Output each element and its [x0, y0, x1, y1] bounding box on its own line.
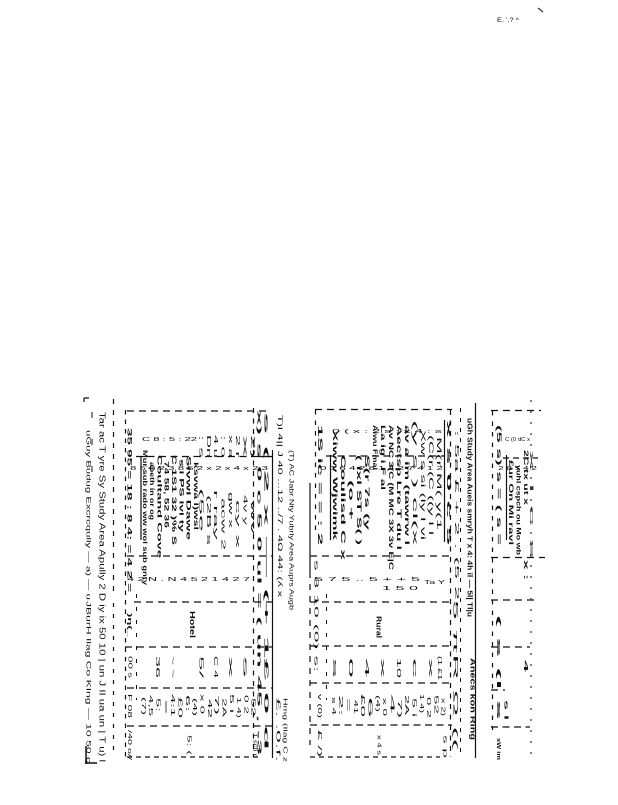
svg-text:s i PS ivi ty: s i PS ivi ty: [177, 459, 183, 534]
svg-text:x a: x a: [227, 435, 233, 461]
svg-text:5 7 5 .. 5 + + 5: 5 7 5 .. 5 + + 5: [314, 577, 420, 583]
svg-text:1 4): 1 4): [235, 697, 241, 718]
svg-text:C 4: C 4: [212, 656, 218, 678]
svg-text:2A: 2A: [403, 695, 409, 716]
svg-text:v (0): v (0): [316, 694, 322, 718]
svg-text:(C(r (C ((y I l: (C(r (C ((y I l: [427, 435, 433, 535]
svg-text:s l: s l: [502, 700, 508, 721]
svg-text:C 1S1 32 )% S: C 1S1 32 )% S: [170, 455, 176, 545]
svg-text:C 8 : 5 : 22: C 8 : 5 : 22: [142, 437, 197, 443]
svg-text:Rural: Rural: [375, 616, 384, 638]
svg-text:uGuy Budug Excrcqully — a) — u: uGuy Budug Excrcqully — a) — u: [84, 430, 91, 601]
svg-text:2C tx ut x: 2C tx ut x: [522, 450, 528, 506]
svg-text:7): 7): [396, 699, 402, 718]
svg-text:~ ~: ~ ~: [169, 656, 175, 680]
svg-text:5/: 5/: [197, 656, 203, 680]
svg-text:x 4 s: x 4 s: [375, 735, 381, 755]
svg-text:x s 0 c 5: x s 0 c 5: [445, 420, 451, 549]
svg-text:5: (: 5: (: [185, 735, 191, 755]
svg-text:x :: x :: [522, 560, 528, 580]
svg-text:2A: 2A: [220, 698, 226, 718]
svg-text:74 58, 52 36: 74 58, 52 36: [163, 461, 169, 529]
svg-text:Dn: Dn: [205, 435, 211, 458]
svg-text:C (0 dC x: C (0 dC x: [505, 437, 530, 443]
svg-text:(1 £1: (1 £1: [436, 656, 442, 680]
svg-text:0 2: 0 2: [425, 697, 431, 718]
svg-text:=: =: [344, 698, 350, 712]
svg-text:0: 0: [347, 658, 353, 678]
svg-text:5 πR Ω ((: 5 πR Ω ((: [451, 600, 457, 750]
svg-text:yuhl cspch ou Mo wb: yuhl cspch ou Mo wb: [514, 465, 520, 555]
svg-text:4: 4: [388, 694, 394, 714]
svg-text:£ur On Mi ravl: £ur On Mi ravl: [507, 460, 513, 546]
svg-text:: s: : s: [197, 435, 203, 459]
svg-text:s p: s p: [441, 735, 447, 758]
svg-text:6: 6: [366, 697, 372, 718]
svg-text:2 r: 2 r: [234, 435, 240, 458]
svg-text:(y s ) cl(x: (y s ) cl(x: [411, 420, 417, 545]
svg-text:£0: £0: [176, 697, 182, 718]
svg-text:Aiwu Fmal: Aiwu Fmal: [371, 425, 377, 470]
svg-text:5:: 5:: [154, 698, 160, 713]
svg-text:x: x: [427, 658, 433, 679]
svg-text:wv: wv: [249, 495, 255, 535]
svg-text:Ta Y: Ta Y: [424, 580, 446, 586]
svg-text:( s (l s: ( s (l s: [495, 615, 501, 720]
svg-text:)η(_: )η(_: [126, 613, 132, 639]
svg-text:E. '.? ^: E. '.? ^: [497, 18, 519, 24]
svg-text:(4): (4): [374, 695, 380, 712]
svg-text:x 0: x 0: [381, 698, 387, 716]
svg-text:x: x: [227, 656, 233, 680]
svg-text:41: 41: [352, 700, 358, 714]
svg-text:ksvwa l)wsl: ksvwa l)wsl: [192, 462, 198, 531]
svg-text:(5 s) s = ( s =: (5 s) s = ( s =: [495, 425, 501, 547]
svg-text:(T) AC Jabr Nty Yubrly Area Au: (T) AC Jabr Nty Yubrly Area Auprs Augb: [287, 450, 294, 611]
svg-text:Av NC 3(C (M MC 3X 3v E|C: Av NC 3(C (M MC 3X 3v E|C: [387, 425, 393, 571]
svg-text:2:: 2:: [337, 695, 343, 718]
svg-text:: o: : o: [219, 435, 225, 458]
svg-text:(7): (7): [140, 697, 146, 715]
svg-text:Tar ac T yre Sy Study Area Apu: Tar ac T yre Sy Study Area Apully 2 D iy…: [97, 412, 106, 762]
svg-text:cy x: cy x: [234, 500, 240, 548]
svg-text:apeth in or og: apeth in or og: [148, 462, 154, 520]
svg-text:Hmg (Ilag C z: Hmg (Ilag C z: [281, 698, 287, 762]
svg-text:00 s: 00 s: [126, 656, 132, 678]
svg-text:/40 o//: /40 o//: [126, 730, 132, 761]
svg-text:gw x: gw x: [227, 492, 233, 528]
svg-text:£ /): £ /): [316, 730, 322, 757]
svg-text:(o +: (o +: [347, 480, 353, 522]
svg-text:( ixl ST S( ): ( ixl ST S( ): [355, 455, 361, 545]
svg-text:10: 10: [395, 658, 401, 678]
svg-text:S(r 7s (y: S(r 7s (y: [363, 455, 369, 532]
svg-text:4v y: 4v y: [241, 495, 247, 525]
svg-text:52: 52: [250, 698, 256, 716]
svg-text:Xiww Wjwimk: Xiww Wjwimk: [331, 430, 337, 542]
svg-text:: 5a £ + 2 . (5 2: : 5a £ + 2 . (5 2: [453, 430, 459, 600]
svg-text:s: s: [331, 658, 337, 679]
svg-text:4: 4: [363, 658, 369, 678]
svg-text:Aectsp Lre T du l: Aectsp Lre T du l: [395, 425, 401, 551]
svg-text:7): 7): [213, 695, 219, 716]
svg-text:JBurH Ilag Co KIng — 10 50 c: JBurH Ilag Co KIng — 10 50 c: [84, 601, 91, 764]
svg-text:(4): (4): [191, 698, 197, 716]
svg-text:c: c: [411, 658, 417, 679]
svg-text:4 u: 4 u: [212, 435, 218, 458]
svg-text:La ig i F al: La ig i F al: [379, 425, 385, 491]
svg-text:36: 36: [154, 656, 160, 678]
svg-text:s ( 2 x — (+ 1£ 0 d: s ( 2 x — (+ 1£ 0 d: [262, 412, 268, 753]
svg-text:1S ic = = : 2: 1S ic = = : 2: [316, 425, 322, 547]
svg-text:s 4: s 4: [330, 697, 336, 715]
svg-text:4:1: 4:1: [169, 694, 175, 717]
svg-text:35 95 = 18 : 8 4: = 4 2 =: 35 95 = 18 : 8 4: = 4 2 =: [126, 428, 132, 593]
svg-text:(2B s: (2B s: [205, 495, 211, 545]
svg-text:Hotel: Hotel: [188, 611, 197, 638]
svg-text:52: 52: [432, 695, 438, 714]
svg-text:Coulisd C x: Coulisd C x: [339, 455, 345, 562]
svg-text:x 2): x 2): [440, 698, 446, 716]
svg-text:Sivwi Dawe: Sivwi Dawe: [185, 456, 191, 542]
svg-text:Xw s si (ly I vi: Xw s si (ly I vi: [419, 430, 425, 540]
svg-text:x: x: [241, 435, 247, 460]
svg-text:r ray: r ray: [212, 490, 218, 540]
svg-text:Coultand Cove: Coultand Cove: [155, 455, 161, 560]
svg-text:Mur sub rado ww wol sub gnty: Mur sub rado ww wol sub gnty: [141, 450, 147, 586]
svg-text:2): 2): [249, 435, 255, 459]
svg-text:x i c s: x i c s: [528, 450, 534, 561]
svg-text:1 4): 1 4): [418, 694, 424, 713]
svg-text:M(r M( y(1: M(r M( y(1: [435, 437, 441, 532]
svg-text:uGh Study Area Aueis smryh T x: uGh Study Area Aueis smryh T x 4: 4h il …: [465, 418, 472, 617]
svg-text:(5e: (5e: [197, 488, 203, 532]
svg-text:6:: 6:: [184, 695, 190, 714]
svg-text:av a im (tawrw l: av a im (tawrw l: [403, 425, 409, 546]
svg-text:T scti p: T scti p: [251, 733, 257, 758]
svg-text:1 5 0: 1 5 0: [382, 586, 418, 592]
svg-text:£0: £0: [359, 694, 365, 717]
svg-text:acw 2: acw 2: [219, 498, 225, 550]
svg-text:5 i: 5 i: [228, 694, 234, 713]
svg-text:42: 42: [206, 699, 212, 718]
svg-text:0 2: 0 2: [242, 695, 248, 714]
svg-text:4,5: 4,5: [147, 695, 153, 716]
svg-text:sW im: sW im: [495, 738, 501, 760]
svg-text:=: =: [162, 700, 168, 714]
svg-text:F 08: F 08: [126, 694, 132, 718]
svg-text:T)l 4|| J 40 ...12 ../7 . 4Ω 4: T)l 4|| J 40 ...12 ../7 . 4Ω 44: (ʎ x: [276, 415, 283, 598]
svg-text:5 i: 5 i: [410, 698, 416, 717]
svg-text:x: x: [379, 658, 385, 679]
svg-text:x 0: x 0: [198, 694, 204, 714]
svg-text:£. .0.f.: £. .0.f.: [274, 698, 280, 763]
svg-text:Anecs kon Ring: Anecs kon Ring: [468, 658, 475, 740]
svg-text:s: s: [241, 656, 247, 680]
